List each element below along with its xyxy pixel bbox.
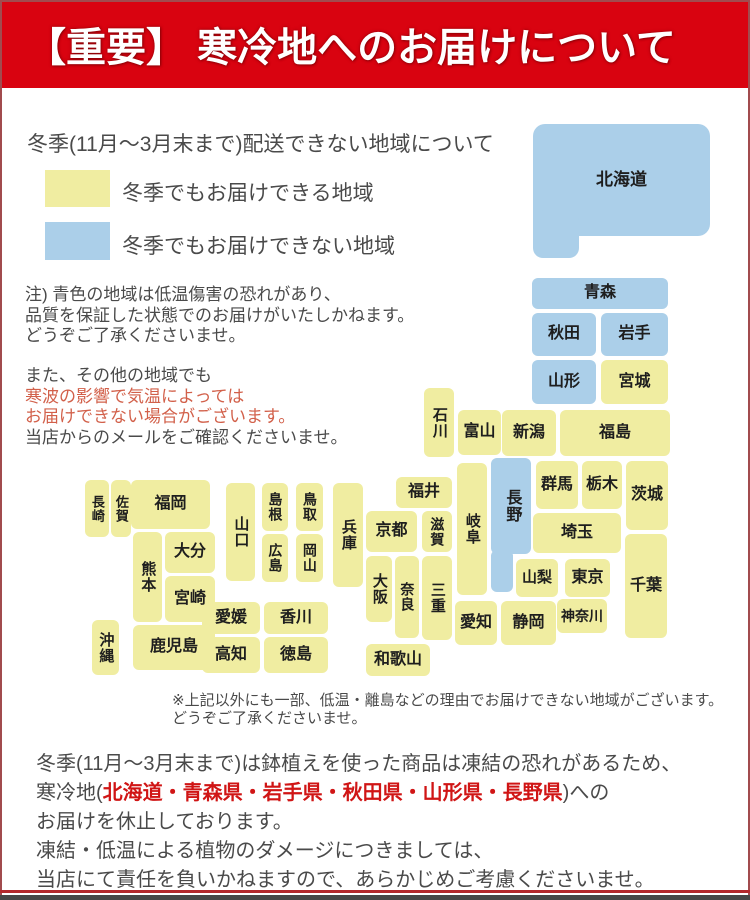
prefecture-label: 島根	[268, 492, 283, 522]
map-footnote: ※上記以外にも一部、低温・離島などの理由でお届けできない地域がございます。 どう…	[172, 692, 723, 728]
footer-text-post: )への	[563, 782, 610, 804]
map-block-aichi: 愛知	[455, 601, 497, 645]
prefecture-label: 宮城	[618, 374, 650, 391]
prefecture-label: 秋田	[548, 326, 580, 343]
footer-line: 寒冷地(北海道・青森県・岩手県・秋田県・山形県・長野県)への	[36, 779, 681, 808]
footer-text-pre: 寒冷地(	[36, 782, 103, 804]
prefecture-label: 兵庫	[340, 519, 356, 551]
map-block-yamaguchi: 山口	[226, 483, 255, 581]
map-block-fukuoka: 福岡	[131, 480, 210, 529]
map-block-hyogo: 兵庫	[333, 483, 363, 587]
prefecture-label: 千葉	[630, 578, 662, 595]
prefecture-label: 新潟	[513, 425, 545, 442]
prefecture-label: 長野	[503, 489, 520, 523]
prefecture-label: 東京	[571, 570, 603, 587]
map-block-tokushima: 徳島	[264, 637, 328, 673]
map-block-kyoto: 京都	[366, 511, 417, 552]
prefecture-label: 滋賀	[430, 517, 445, 547]
map-block-niigata: 新潟	[502, 410, 556, 456]
map-block-shizuoka: 静岡	[501, 601, 556, 645]
map-block-chiba: 千葉	[625, 534, 667, 638]
map-block-shiga: 滋賀	[422, 511, 452, 552]
prefecture-label: 山梨	[522, 570, 552, 586]
prefecture-label: 福岡	[154, 496, 186, 513]
prefecture-label: 大分	[174, 544, 206, 561]
map-block-nagano-ext	[491, 550, 513, 592]
prefecture-label: 神奈川	[561, 609, 603, 624]
prefecture-label: 群馬	[541, 477, 573, 494]
map-block-ishikawa: 石川	[424, 388, 454, 457]
map-block-tottori: 鳥取	[296, 483, 323, 531]
map-block-fukui: 福井	[396, 477, 452, 508]
prefecture-label: 茨城	[631, 487, 663, 504]
map-block-aomori: 青森	[532, 278, 668, 309]
prefecture-label: 三重	[429, 582, 445, 614]
prefecture-label: 奈良	[400, 582, 415, 612]
footer-line: 凍結・低温による植物のダメージにつきましては、	[36, 837, 681, 866]
map-block-hokkaido-ext	[533, 210, 579, 258]
prefecture-label: 北海道	[596, 171, 647, 189]
prefecture-label: 香川	[280, 610, 312, 627]
map-footnote-line: ※上記以外にも一部、低温・離島などの理由でお届けできない地域がございます。	[172, 692, 723, 710]
footer-notice: 冬季(11月～3月末まで)は鉢植えを使った商品は凍結の恐れがあるため、 寒冷地(…	[36, 750, 681, 895]
prefecture-label: 栃木	[586, 477, 618, 494]
map-block-shimane: 島根	[262, 483, 288, 531]
prefecture-label: 山形	[548, 374, 580, 391]
prefecture-label: 佐賀	[114, 495, 128, 523]
prefecture-label: 愛媛	[215, 610, 247, 627]
map-block-osaka: 大阪	[366, 556, 392, 622]
prefecture-label: 大阪	[371, 573, 387, 605]
prefecture-label: 熊本	[140, 561, 156, 593]
prefecture-label: 岩手	[618, 326, 650, 343]
map-block-saitama: 埼玉	[533, 513, 621, 553]
prefecture-label: 富山	[463, 424, 495, 441]
map-block-miyagi: 宮城	[601, 360, 668, 404]
prefecture-label: 山口	[233, 516, 249, 548]
prefecture-label: 広島	[268, 543, 283, 573]
map-block-kagoshima: 鹿児島	[133, 625, 215, 670]
prefecture-label: 愛知	[460, 615, 492, 632]
prefecture-label: 鳥取	[302, 492, 317, 522]
prefecture-label: 福井	[408, 484, 440, 501]
map-block-kanagawa: 神奈川	[557, 599, 607, 633]
prefecture-label: 徳島	[280, 647, 312, 664]
prefecture-label: 長崎	[90, 495, 104, 523]
prefecture-label: 高知	[215, 647, 247, 664]
map-block-gunma: 群馬	[536, 461, 578, 509]
map-block-okayama: 岡山	[296, 534, 323, 582]
map-block-yamanashi: 山梨	[516, 559, 558, 597]
prefecture-label: 岡山	[302, 543, 317, 573]
map-block-nagano: 長野	[491, 458, 531, 554]
prefecture-label: 鹿児島	[150, 639, 198, 656]
map-block-nara: 奈良	[395, 556, 419, 638]
map-block-miyazaki: 宮崎	[165, 576, 215, 622]
bottom-red-line	[0, 890, 750, 893]
bottom-dark-line	[0, 895, 750, 900]
map-block-hiroshima: 広島	[262, 534, 288, 582]
map-block-tokyo: 東京	[565, 559, 610, 597]
map-block-okinawa: 沖縄	[92, 620, 119, 675]
footer-line: お届けを休止しております。	[36, 808, 681, 837]
prefecture-label: 石川	[431, 407, 447, 439]
map-footnote-line: どうぞご了承くださいませ。	[172, 710, 723, 728]
map-block-kagawa: 香川	[264, 602, 328, 634]
map-block-kumamoto: 熊本	[133, 532, 162, 622]
map-block-iwate: 岩手	[601, 313, 668, 356]
prefecture-label: 岐阜	[464, 513, 480, 545]
map-block-toyama: 富山	[458, 410, 501, 455]
prefecture-label: 青森	[584, 285, 616, 302]
prefecture-label: 宮崎	[174, 591, 206, 608]
prefecture-label: 埼玉	[561, 525, 593, 542]
map-block-fukushima: 福島	[560, 410, 670, 456]
map-block-gifu: 岐阜	[457, 463, 487, 595]
map-block-nagasaki: 長崎	[85, 480, 109, 537]
prefecture-label: 沖縄	[98, 632, 114, 664]
map-block-mie: 三重	[422, 556, 452, 640]
map-block-tochigi: 栃木	[582, 461, 622, 509]
prefecture-label: 福島	[599, 425, 631, 442]
map-block-wakayama: 和歌山	[366, 644, 430, 676]
map-block-yamagata: 山形	[532, 360, 596, 404]
prefecture-label: 和歌山	[374, 652, 422, 669]
footer-line: 冬季(11月～3月末まで)は鉢植えを使った商品は凍結の恐れがあるため、	[36, 750, 681, 779]
map-block-ibaraki: 茨城	[626, 461, 668, 530]
prefecture-label: 静岡	[512, 615, 544, 632]
prefecture-label: 京都	[375, 523, 407, 540]
map-block-saga: 佐賀	[111, 480, 131, 537]
map-block-oita: 大分	[165, 532, 215, 573]
cold-region-list: 北海道・青森県・岩手県・秋田県・山形県・長野県	[103, 782, 563, 804]
map-block-akita: 秋田	[532, 313, 596, 356]
